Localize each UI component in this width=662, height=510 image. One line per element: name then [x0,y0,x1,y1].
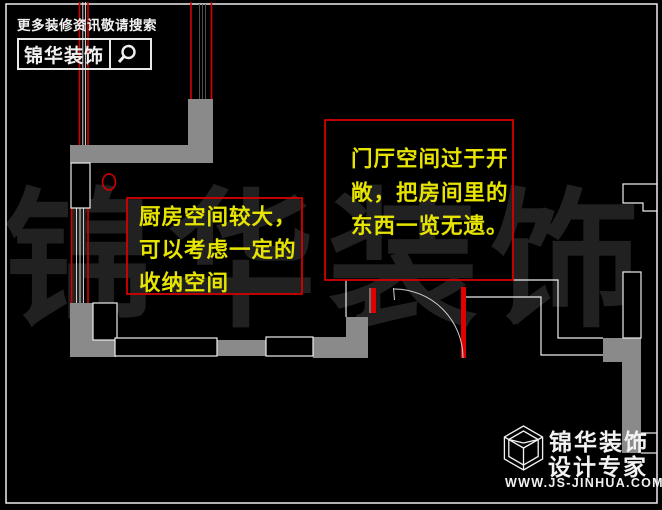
red-circle-marker [103,174,116,190]
wall-notch-top-right [623,184,657,211]
entry-door [370,287,466,358]
annotation-hallway-line: 门厅空间过于开 [351,143,509,177]
wall-bottom-2 [217,340,266,356]
left-wall-lines-lower [72,208,88,304]
wall-door-left-stub [346,317,368,337]
branding-banner: 更多装修资讯敬请搜索 锦华装饰 [17,14,157,70]
annotation-kitchen-text: 厨房空间较大， 可以考虑一定的 收纳空间 [139,201,297,300]
cube-logo-icon [500,424,547,478]
annotation-hallway-line: 敞，把房间里的 [351,177,509,211]
top-wall-lines [191,2,212,100]
wall-bottom-3 [313,337,368,358]
annotation-hallway-line: 东西一览无遗。 [351,210,509,244]
wall-bottom-1 [70,340,116,357]
window-right-wall [623,272,641,338]
wall-right-block [603,338,641,362]
wall-kitchen-top-stub [188,99,213,145]
search-box-logo-text: 锦华装饰 [19,41,109,68]
door-swing-arc [394,289,463,358]
annotation-kitchen-line: 厨房空间较大， [139,201,297,234]
magnifier-icon[interactable] [111,42,142,66]
annotation-kitchen-line: 可以考虑一定的 [139,234,297,267]
wall-kitchen-top [70,145,213,163]
window-bottom-1 [115,338,217,356]
door-jamb-left [371,288,376,313]
footer-website-url: WWW.JS-JINHUA.COM [505,476,662,490]
floorplan-screenshot: 锦华装饰 [0,0,662,510]
search-box[interactable]: 锦华装饰 [17,38,152,70]
annotation-kitchen-line: 收纳空间 [139,267,297,300]
opening-corner [93,303,117,340]
annotation-hallway-text: 门厅空间过于开 敞，把房间里的 东西一览无遗。 [351,143,509,244]
window-bottom-2 [266,337,313,356]
branding-tagline: 更多装修资讯敬请搜索 [17,14,157,34]
door-jamb-right [461,287,466,358]
window-left-wall [71,163,90,208]
